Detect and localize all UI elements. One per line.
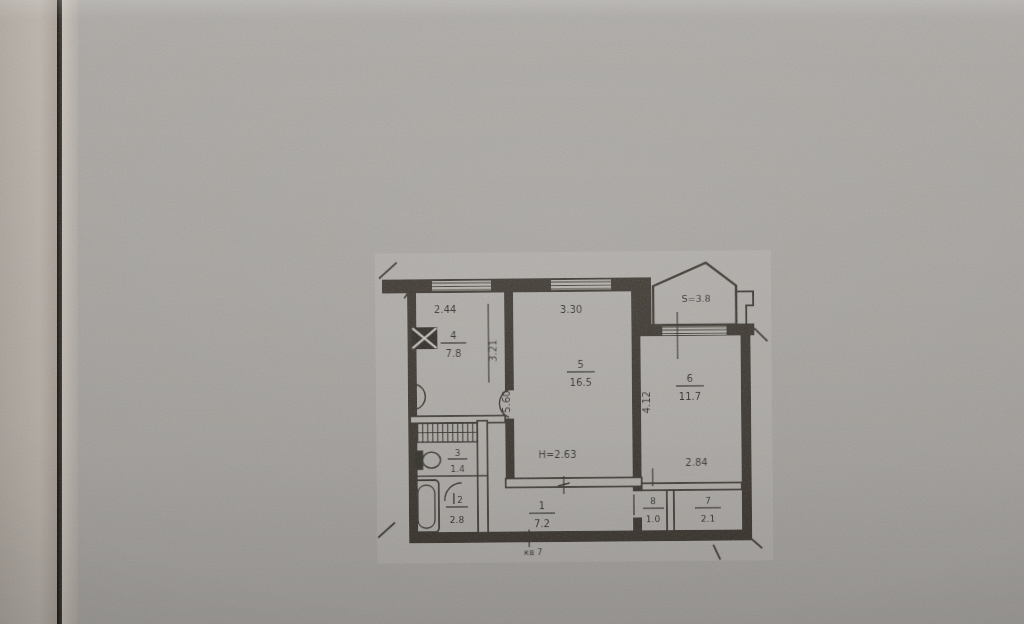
floorplan-drawing: 2.44 3.21 3.30 5.60 4.12 2.84 Н=2.63 S=3… bbox=[0, 0, 1024, 624]
photo-grain bbox=[0, 0, 1024, 624]
document-photo: 2.44 3.21 3.30 5.60 4.12 2.84 Н=2.63 S=3… bbox=[0, 0, 1024, 624]
